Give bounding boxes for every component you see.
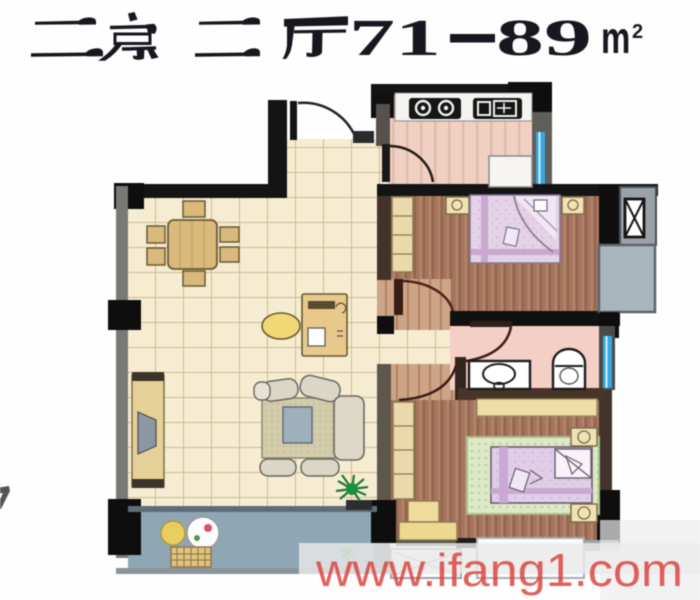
svg-text:www.ifang1.com: www.ifang1.com: [315, 544, 683, 596]
svg-text:89: 89: [496, 10, 592, 67]
svg-text:71: 71: [349, 10, 441, 67]
svg-text:m: m: [601, 13, 630, 63]
svg-text:2: 2: [632, 21, 643, 43]
